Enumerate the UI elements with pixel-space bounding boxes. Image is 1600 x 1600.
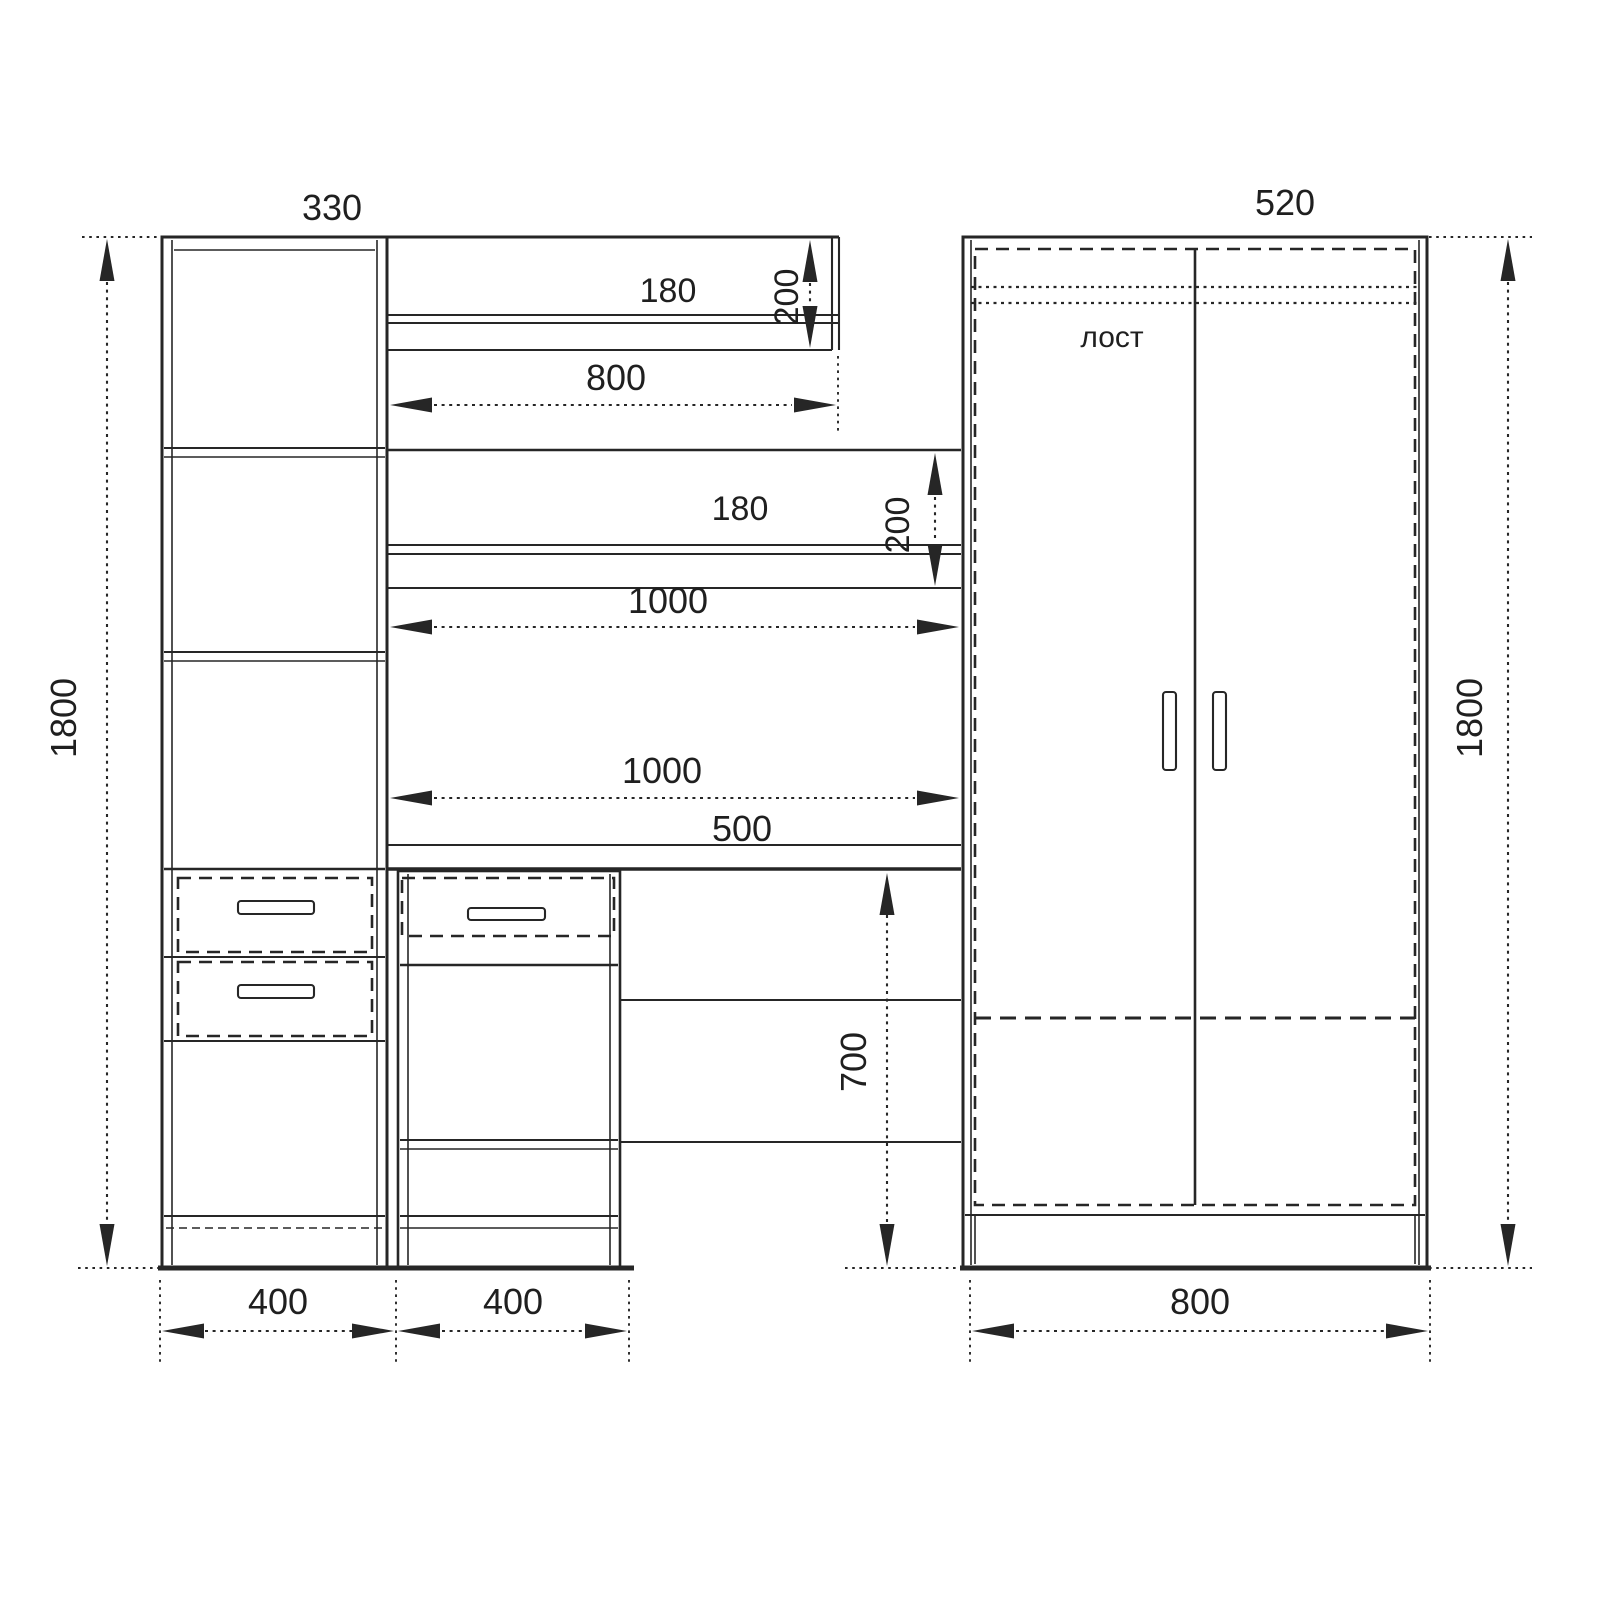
furniture-elevation-drawing: лост 1800 1800 330 520 180 200 <box>0 0 1600 1600</box>
desk-drawer-handle <box>468 908 545 920</box>
wall-shelf-lower <box>387 450 961 588</box>
dim-label-height-right: 1800 <box>1449 678 1490 758</box>
dim-label-desk-height: 700 <box>833 1032 874 1092</box>
dim-label-cabinet-top-depth: 330 <box>302 187 362 228</box>
arrow-down-icon <box>880 1224 895 1266</box>
wardrobe: лост <box>963 237 1427 1268</box>
arrow-left-icon <box>390 791 432 806</box>
furniture-elevation-page: лост 1800 1800 330 520 180 200 <box>0 0 1600 1600</box>
wardrobe-door-handle-left <box>1163 692 1176 770</box>
desk <box>387 845 961 1268</box>
dim-height-left: 1800 <box>43 237 158 1268</box>
arrow-up-icon <box>928 453 943 495</box>
dim-height-right: 1800 <box>1429 237 1532 1268</box>
dim-label-base-wardrobe: 800 <box>1170 1281 1230 1322</box>
arrow-right-icon <box>917 620 959 635</box>
arrow-right-icon <box>585 1324 627 1339</box>
dim-label-desk-width: 1000 <box>622 750 702 791</box>
arrow-right-icon <box>352 1324 394 1339</box>
arrow-down-icon <box>803 306 818 348</box>
dim-label-base-cabinet: 400 <box>248 1281 308 1322</box>
dim-label-height-left: 1800 <box>43 678 84 758</box>
arrow-down-icon <box>100 1224 115 1266</box>
dim-bases: 400 400 800 <box>160 1280 1430 1362</box>
dim-label-shelf-upper-opening: 180 <box>640 272 697 310</box>
left-cabinet <box>162 237 387 1268</box>
dim-label-base-pedestal: 400 <box>483 1281 543 1322</box>
left-cabinet-drawer-2-handle <box>238 985 314 998</box>
dim-label-shelf-lower-width: 1000 <box>628 580 708 621</box>
arrow-right-icon <box>917 791 959 806</box>
dim-label-shelf-lower-height: 200 <box>879 497 917 554</box>
dim-shelf-lower: 180 200 1000 <box>390 453 959 635</box>
arrow-left-icon <box>972 1324 1014 1339</box>
arrow-down-icon <box>1501 1224 1516 1266</box>
arrow-up-icon <box>803 240 818 282</box>
arrow-left-icon <box>390 398 432 413</box>
desk-pedestal-outline <box>398 871 620 1268</box>
wardrobe-door-handle-right <box>1213 692 1226 770</box>
left-cabinet-outline <box>162 237 387 1268</box>
dim-desk: 1000 500 700 <box>390 750 959 1268</box>
left-cabinet-drawer-1-handle <box>238 901 314 914</box>
arrow-left-icon <box>162 1324 204 1339</box>
arrow-up-icon <box>1501 239 1516 281</box>
dim-label-shelf-lower-opening: 180 <box>712 490 769 528</box>
dim-label-shelf-upper-width: 800 <box>586 357 646 398</box>
dim-label-shelf-upper-height: 200 <box>768 269 806 326</box>
arrow-left-icon <box>390 620 432 635</box>
arrow-up-icon <box>100 239 115 281</box>
arrow-right-icon <box>1386 1324 1428 1339</box>
arrow-up-icon <box>880 873 895 915</box>
dim-shelf-upper: 180 200 800 <box>390 240 838 432</box>
arrow-down-icon <box>928 544 943 586</box>
wardrobe-interior-label: лост <box>1080 321 1144 354</box>
arrow-left-icon <box>398 1324 440 1339</box>
dim-label-desk-depth: 500 <box>712 808 772 849</box>
dim-label-wardrobe-top-depth: 520 <box>1255 182 1315 223</box>
arrow-right-icon <box>794 398 836 413</box>
